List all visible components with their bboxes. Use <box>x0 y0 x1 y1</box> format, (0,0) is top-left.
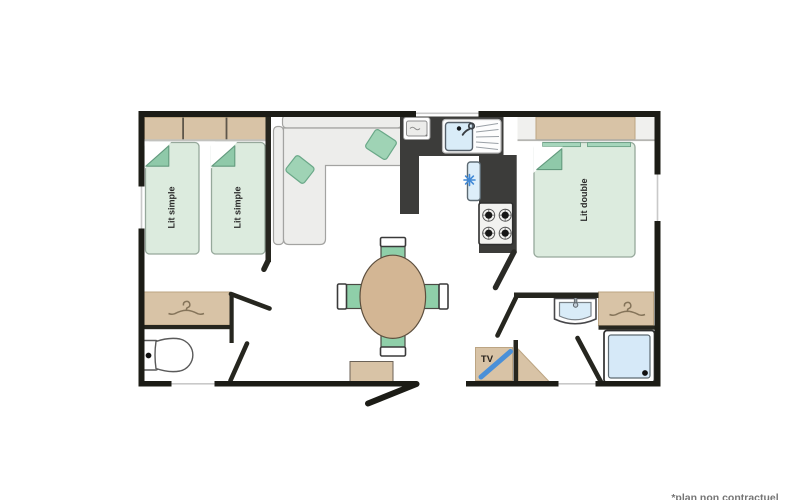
svg-text:Lit simple: Lit simple <box>233 186 243 228</box>
svg-text:TV: TV <box>481 354 494 365</box>
svg-text:Lit double: Lit double <box>579 179 589 222</box>
svg-text:Lit simple: Lit simple <box>167 186 177 228</box>
svg-text:*plan non contractuel: *plan non contractuel <box>671 492 778 500</box>
